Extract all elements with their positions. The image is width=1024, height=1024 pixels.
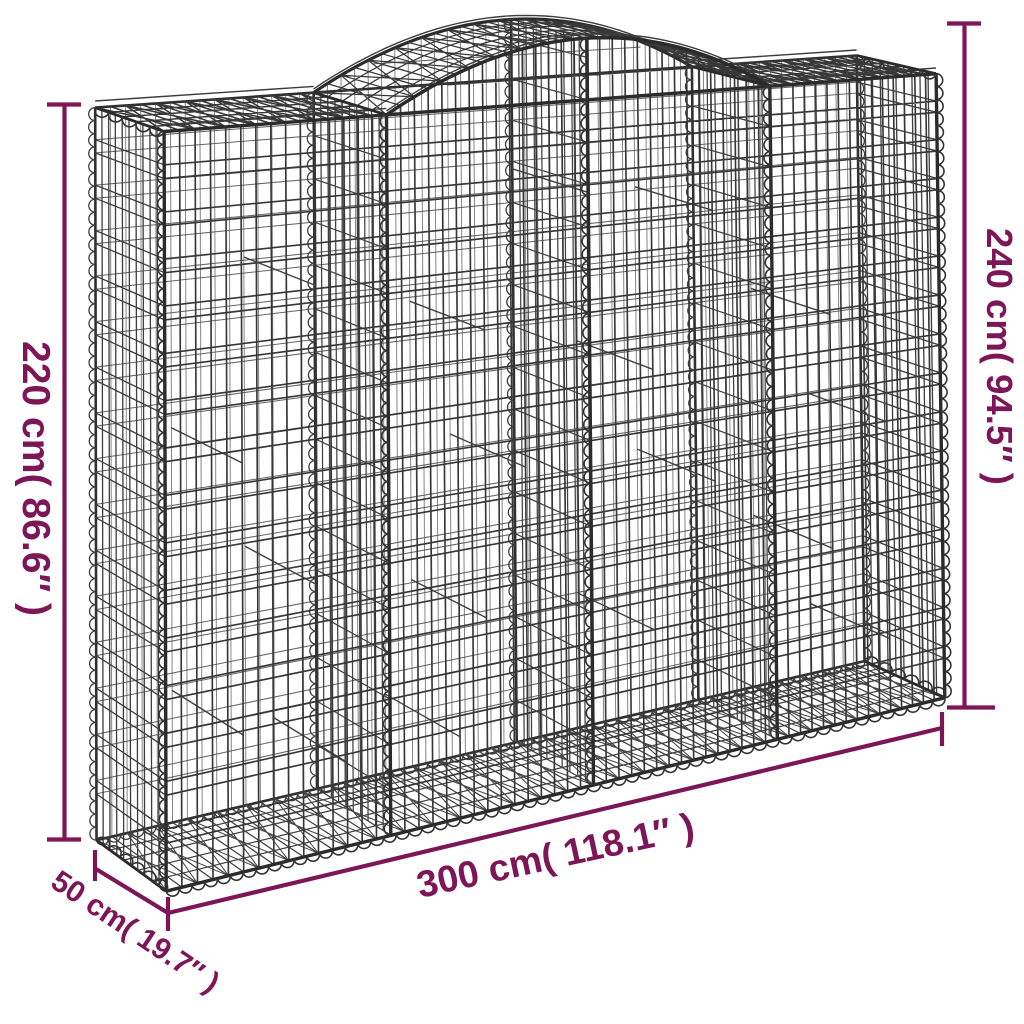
svg-text:220 cm( 86.6″ ): 220 cm( 86.6″ ) [14,341,57,616]
svg-text:240 cm( 94.5″ ): 240 cm( 94.5″ ) [979,228,1020,485]
